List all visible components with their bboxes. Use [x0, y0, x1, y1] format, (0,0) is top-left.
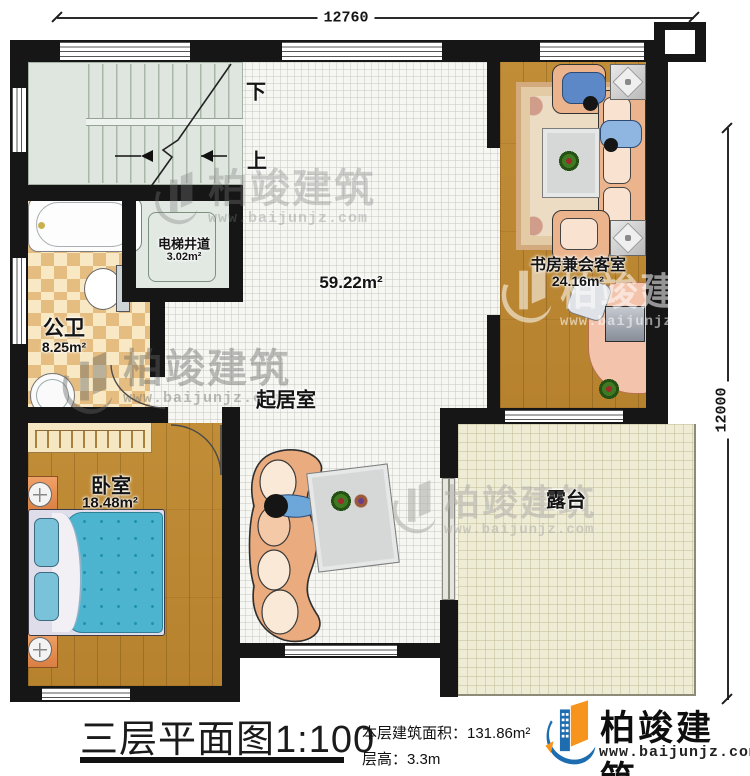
- desk-plant: [598, 378, 620, 400]
- chimney-flue: [665, 30, 695, 54]
- person-head: [604, 138, 618, 152]
- brand-url: www.baijunjz.com: [599, 744, 750, 761]
- side-table-lamp-top: [610, 64, 646, 100]
- window-living-bottom: [285, 645, 397, 656]
- bedroom-area: 18.48m²: [82, 495, 138, 512]
- computer-monitor: [605, 306, 645, 342]
- bathroom-area: 8.25m²: [42, 339, 86, 355]
- window-bedroom-bottom: [42, 688, 130, 700]
- wall-right: [646, 40, 668, 424]
- study-area: 24.16m²: [552, 273, 604, 289]
- elevator-area: 3.02m²: [167, 251, 202, 263]
- brand-logo-icon: [540, 696, 598, 770]
- terrace-sliding-door: [442, 478, 455, 600]
- study-name: 书房兼会客室: [530, 251, 626, 275]
- wardrobe-hangers: [35, 430, 145, 448]
- wardrobe: [26, 422, 152, 453]
- floor-area-label: 本层建筑面积：131.86m²: [362, 722, 530, 743]
- dimension-line-top: [57, 17, 694, 19]
- terrace-wall-left-lower: [440, 600, 458, 697]
- stairs-down-label: 下: [246, 76, 266, 105]
- dimension-height: 12000: [714, 381, 731, 438]
- floor-plan-page: 柏竣建筑 www.baijunjz.com 柏竣建筑 www.baijunjz.…: [0, 0, 750, 776]
- person-head: [583, 96, 598, 111]
- elevator-wall-right: [229, 198, 243, 302]
- dimension-width: 12760: [317, 10, 374, 27]
- table-flowers: [558, 150, 580, 172]
- stairs-up-label: 上: [247, 145, 267, 174]
- window-left-bathroom: [12, 258, 26, 344]
- armchair-cushion: [560, 218, 598, 250]
- window-left-stairs: [12, 88, 26, 152]
- study-wall-left-upper: [487, 62, 500, 148]
- bathroom-door-arc: [108, 362, 168, 412]
- title-underline: [80, 757, 344, 763]
- bedroom-door-arc: [168, 423, 224, 479]
- elevator-wall-bottom: [122, 288, 243, 302]
- window-top-2: [282, 42, 442, 60]
- living-table-fruit: [352, 492, 370, 510]
- window-study-bottom: [505, 410, 623, 422]
- living-coffee-table: [306, 463, 400, 572]
- terrace-floor: [458, 424, 696, 696]
- terrace-wall-left-upper: [440, 412, 458, 478]
- terrace-name: 露台: [546, 484, 586, 513]
- elevator-wall-left: [122, 198, 136, 302]
- stair-direction-marks: [45, 62, 243, 188]
- bathroom-name: 公卫: [43, 312, 85, 342]
- pillow: [34, 518, 59, 567]
- pillow: [34, 572, 59, 621]
- elevator-name: 电梯井道: [158, 234, 210, 253]
- living-name: 起居室: [256, 384, 316, 413]
- plan-title: 三层平面图1:100: [80, 708, 375, 763]
- brand-name: 柏竣建筑: [600, 700, 750, 776]
- window-top-3: [540, 42, 644, 60]
- living-area: 59.22m²: [319, 273, 382, 293]
- floor-height-label: 层高：3.3m: [362, 748, 440, 769]
- window-top-1: [60, 42, 190, 60]
